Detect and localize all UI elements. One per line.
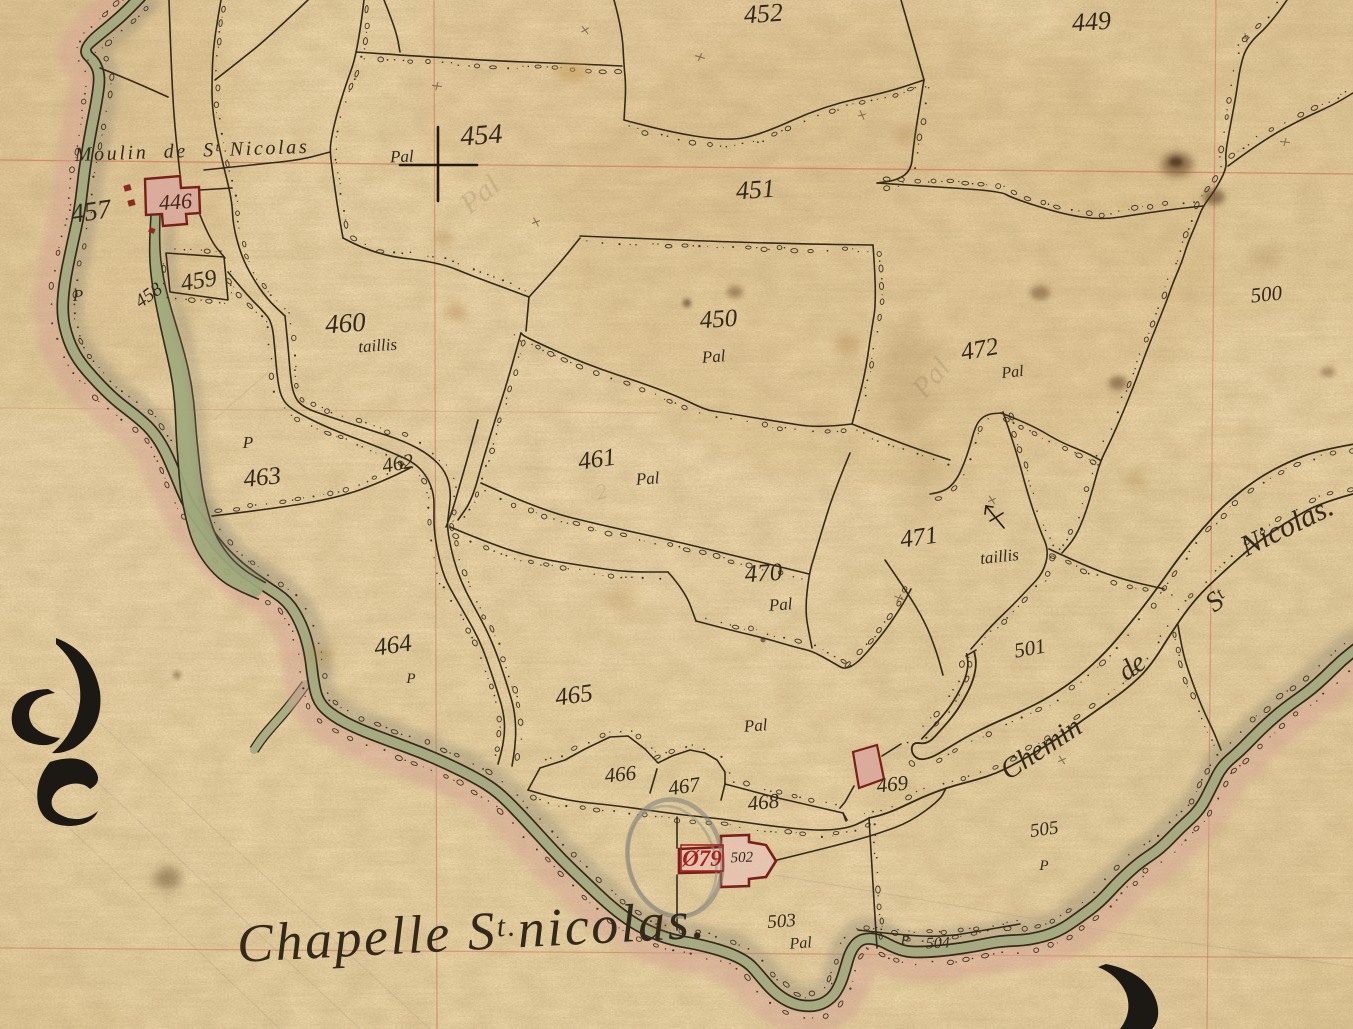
svg-text:450: 450 xyxy=(699,305,739,335)
svg-text:467: 467 xyxy=(667,772,703,800)
svg-text:449: 449 xyxy=(1071,6,1112,38)
svg-text:502: 502 xyxy=(730,850,754,867)
svg-text:471: 471 xyxy=(899,522,940,554)
svg-text:P: P xyxy=(72,286,83,305)
svg-text:taillis: taillis xyxy=(979,545,1020,568)
svg-text:504: 504 xyxy=(926,935,951,953)
svg-text:503: 503 xyxy=(767,910,797,933)
svg-text:464: 464 xyxy=(373,630,414,662)
svg-text:P: P xyxy=(900,933,910,948)
svg-text:469: 469 xyxy=(875,770,909,797)
svg-text:470: 470 xyxy=(744,559,784,589)
svg-text:P: P xyxy=(242,433,253,452)
svg-text:457: 457 xyxy=(69,193,115,229)
svg-text:452: 452 xyxy=(743,0,784,29)
svg-text:454: 454 xyxy=(459,119,503,153)
svg-text:P: P xyxy=(1038,858,1048,874)
svg-text:451: 451 xyxy=(735,174,776,206)
svg-text:446: 446 xyxy=(158,188,193,215)
svg-text:Pal: Pal xyxy=(389,147,415,167)
svg-text:P: P xyxy=(405,671,415,687)
svg-text:Ø79: Ø79 xyxy=(681,846,722,871)
svg-text:taillis: taillis xyxy=(358,335,398,357)
svg-text:461: 461 xyxy=(577,444,618,476)
svg-text:Pal: Pal xyxy=(1000,363,1025,382)
svg-text:Pal: Pal xyxy=(788,934,813,953)
svg-text:Pal: Pal xyxy=(742,715,768,736)
svg-text:500: 500 xyxy=(1249,280,1283,307)
svg-text:468: 468 xyxy=(746,788,780,815)
svg-text:460: 460 xyxy=(324,307,367,340)
svg-text:Pal: Pal xyxy=(634,468,660,489)
svg-text:463: 463 xyxy=(242,462,282,493)
svg-text:466: 466 xyxy=(603,760,637,787)
svg-text:465: 465 xyxy=(554,680,595,712)
svg-text:505: 505 xyxy=(1029,817,1060,842)
svg-text:Pal: Pal xyxy=(767,594,793,615)
svg-text:Pal: Pal xyxy=(700,346,726,367)
